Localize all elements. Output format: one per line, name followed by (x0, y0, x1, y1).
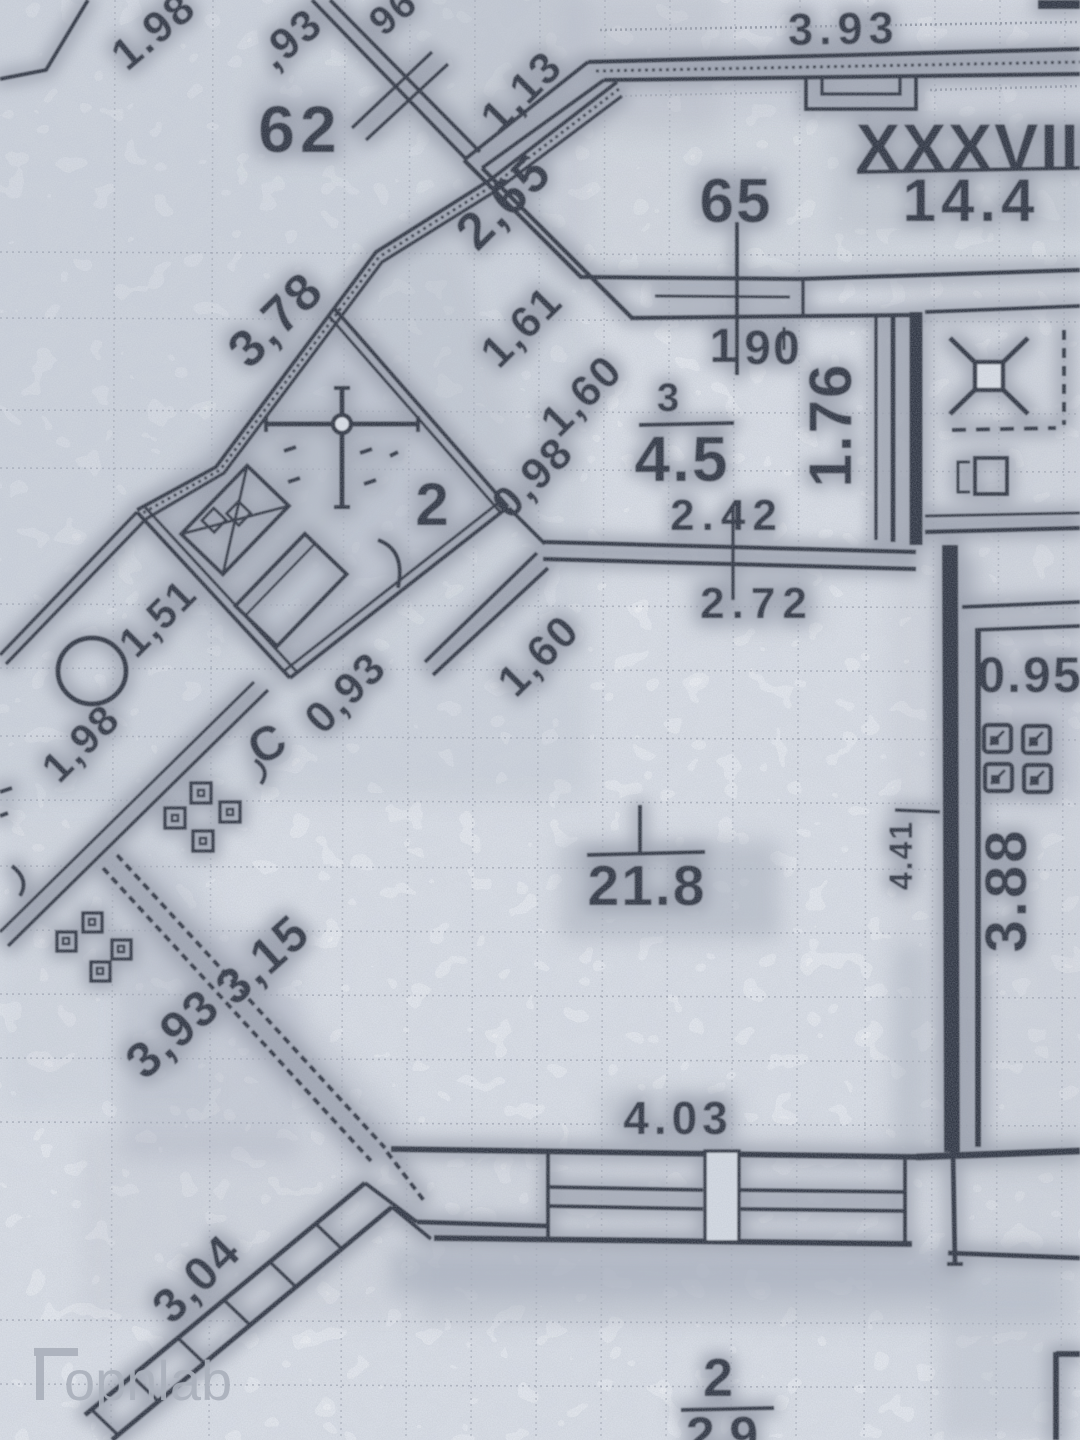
svg-text:opnlab: opnlab (64, 1349, 232, 1412)
